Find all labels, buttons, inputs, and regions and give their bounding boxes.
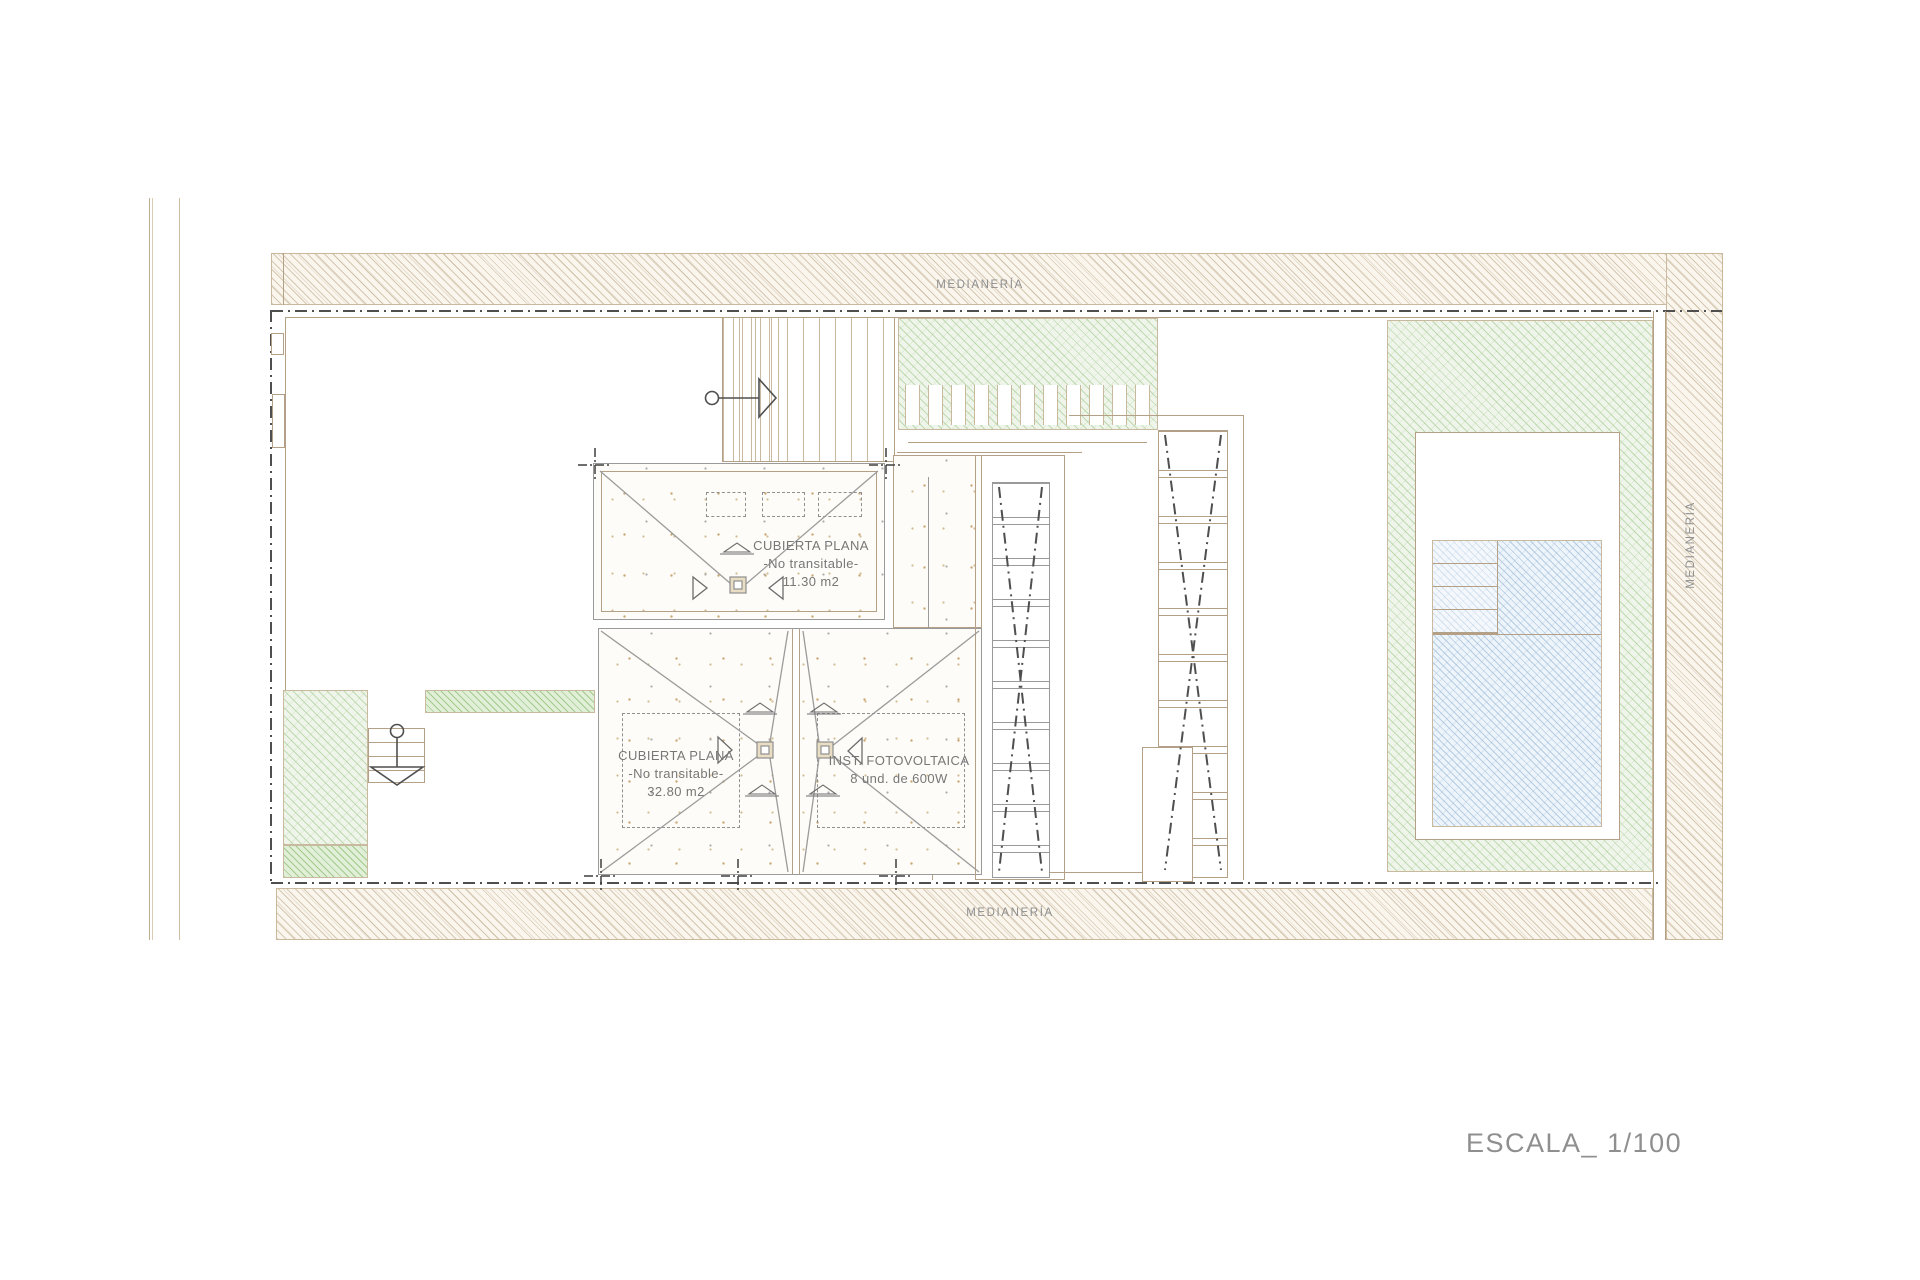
roof-lower-title: CUBIERTA PLANA <box>596 747 756 765</box>
roof-lower-label: CUBIERTA PLANA -No transitable- 32.80 m2 <box>596 747 756 801</box>
photovoltaic-label: INST. FOTOVOLTAICA 8 und. de 600W <box>814 752 984 788</box>
slope-triangle-icon <box>693 577 862 764</box>
photovoltaic-title: INST. FOTOVOLTAICA <box>814 752 984 770</box>
plan-symbols-layer <box>0 0 1920 1280</box>
scale-label: ESCALA_ 1/100 <box>1466 1128 1682 1159</box>
stair-break-lines <box>999 435 1221 872</box>
party-wall-label-right: MEDIANERÍA <box>1685 501 1697 589</box>
photovoltaic-detail: 8 und. de 600W <box>814 770 984 788</box>
roof-upper-subtitle: -No transitable- <box>731 555 891 573</box>
roof-lower-subtitle: -No transitable- <box>596 765 756 783</box>
roof-upper-label: CUBIERTA PLANA -No transitable- 11.30 m2 <box>731 537 891 591</box>
party-wall-label-top: MEDIANERÍA <box>880 279 1080 291</box>
entry-arrow-down-icon <box>371 725 423 786</box>
survey-cross-icon <box>578 448 913 893</box>
party-wall-label-bottom: MEDIANERÍA <box>910 907 1110 919</box>
roof-upper-title: CUBIERTA PLANA <box>731 537 891 555</box>
roof-lower-area: 32.80 m2 <box>596 783 756 801</box>
roof-upper-area: 11.30 m2 <box>731 573 891 591</box>
entry-arrow-right-icon <box>706 379 777 417</box>
roof-plan-sheet: MEDIANERÍA MEDIANERÍA MEDIANERÍA CUBIERT… <box>0 0 1920 1280</box>
